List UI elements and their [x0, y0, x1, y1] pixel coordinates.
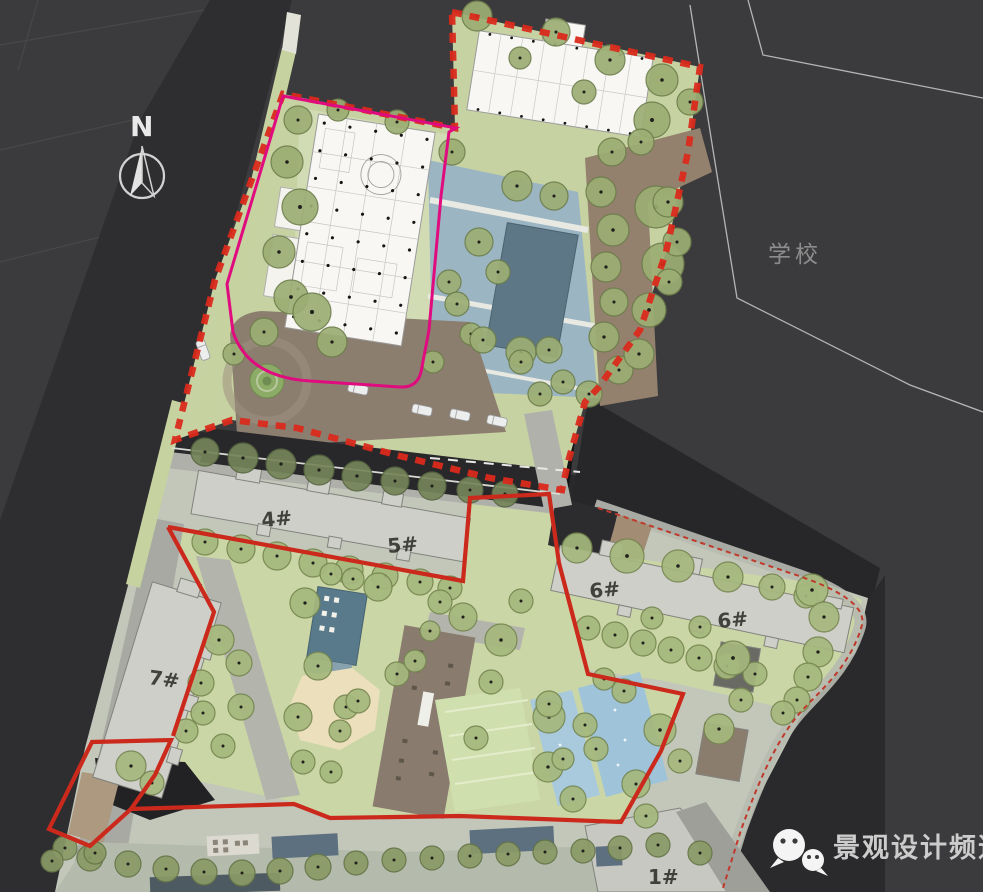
water-deck-strip [271, 833, 338, 858]
master-plan-canvas: 学校 [0, 0, 983, 892]
building-label-6a: 6# [588, 576, 621, 603]
building-label-7: 7# [147, 665, 181, 693]
north-label: N [130, 110, 153, 143]
watermark-text: 景观设计频道 [833, 832, 983, 864]
amenity-terrace [207, 834, 260, 857]
building-label-5: 5# [386, 531, 419, 558]
site-plan-svg: 学校 [0, 0, 983, 892]
building-label-1: 1# [648, 865, 679, 889]
entry-island [250, 364, 284, 398]
building-label-6b: 6# [716, 606, 749, 633]
school-label: 学校 [768, 242, 822, 268]
building-label-4: 4# [260, 505, 293, 532]
